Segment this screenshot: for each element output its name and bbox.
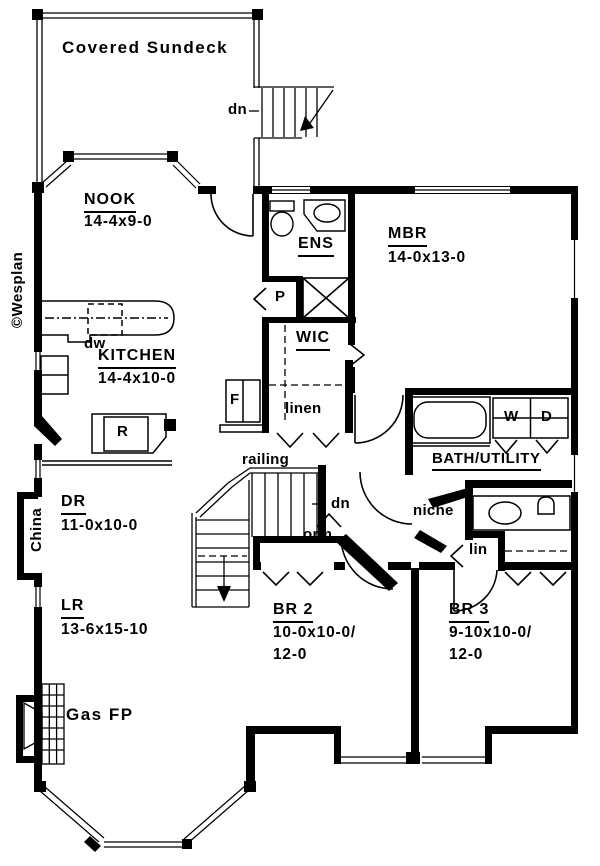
sink-icon	[314, 204, 340, 222]
room-label-dr: DR	[61, 494, 86, 515]
exterior-walls	[16, 151, 578, 852]
room-dims-nook: 14-4x9-0	[84, 214, 152, 230]
floorplan-page: Covered Sundeck dn NOOK 14-4x9-0 ©Wespla…	[0, 0, 600, 866]
dishwasher-box	[88, 304, 122, 335]
room-label-ens: ENS	[298, 236, 334, 257]
shower-icon	[303, 278, 349, 318]
room-label-br2: BR 2	[273, 602, 313, 623]
room-name-lr: LR	[61, 598, 84, 619]
counter-post	[164, 419, 176, 431]
linen-label: linen	[285, 401, 322, 417]
room-dims-mbr: 14-0x13-0	[388, 250, 466, 266]
washer-label: W	[504, 409, 518, 425]
room-label-nook: NOOK	[84, 192, 136, 213]
deck-dn-label: dn	[228, 102, 247, 118]
deck-stairs-arrow	[300, 116, 314, 131]
room-label-bath: BATH/UTILITY	[432, 451, 541, 471]
lin-label: lin	[469, 542, 487, 558]
room-name-ens: ENS	[298, 236, 334, 257]
toilet-icon	[270, 201, 294, 211]
room-name-wic: WIC	[296, 330, 330, 351]
china-label: China	[29, 475, 45, 585]
niche-label: niche	[413, 503, 454, 519]
gas-fireplace-label: Gas FP	[66, 706, 134, 724]
room-name-br2: BR 2	[273, 602, 313, 623]
room-label-wic: WIC	[296, 330, 330, 351]
windows	[36, 154, 578, 847]
room-label-br3: BR 3	[449, 602, 489, 623]
room-label-kitchen: KITCHEN	[98, 348, 176, 369]
pantry-label: P	[275, 289, 285, 305]
fridge-label: F	[230, 392, 239, 408]
room-name-bath: BATH/UTILITY	[432, 451, 541, 471]
island-counter	[92, 414, 166, 453]
room-dims2-br2: 12-0	[273, 647, 307, 663]
room-name-mbr: MBR	[388, 226, 427, 247]
room-label-mbr: MBR	[388, 226, 427, 247]
room-dims-kitchen: 14-4x10-0	[98, 371, 176, 387]
stairs-dn-label: dn	[331, 496, 350, 512]
room-dims1-br3: 9-10x10-0/	[449, 625, 532, 641]
faucet-icon	[538, 497, 554, 514]
room-dims-lr: 13-6x15-10	[61, 622, 148, 638]
ensuite-fixtures	[270, 200, 345, 236]
dormer-label: orm	[303, 527, 332, 543]
range-label: R	[117, 424, 128, 440]
railing-label: railing	[242, 452, 289, 468]
dryer-label: D	[541, 409, 552, 425]
deck-stairs-icon	[249, 87, 334, 138]
room-dims-dr: 11-0x10-0	[61, 518, 138, 534]
room-name-nook: NOOK	[84, 192, 136, 213]
room-name-dr: DR	[61, 494, 86, 515]
room-label-lr: LR	[61, 598, 84, 619]
room-name-kitchen: KITCHEN	[98, 348, 176, 369]
room-dims1-br2: 10-0x10-0/	[273, 625, 356, 641]
sundeck-label: Covered Sundeck	[62, 39, 228, 57]
stairs-down-arrow	[217, 586, 231, 602]
sink-icon-2	[489, 502, 521, 524]
room-dims2-br3: 12-0	[449, 647, 483, 663]
room-name-br3: BR 3	[449, 602, 489, 623]
floorplan-drawing	[0, 0, 600, 866]
dishwasher-label: dw	[84, 336, 105, 352]
copyright-credit: ©Wesplan	[10, 235, 26, 345]
